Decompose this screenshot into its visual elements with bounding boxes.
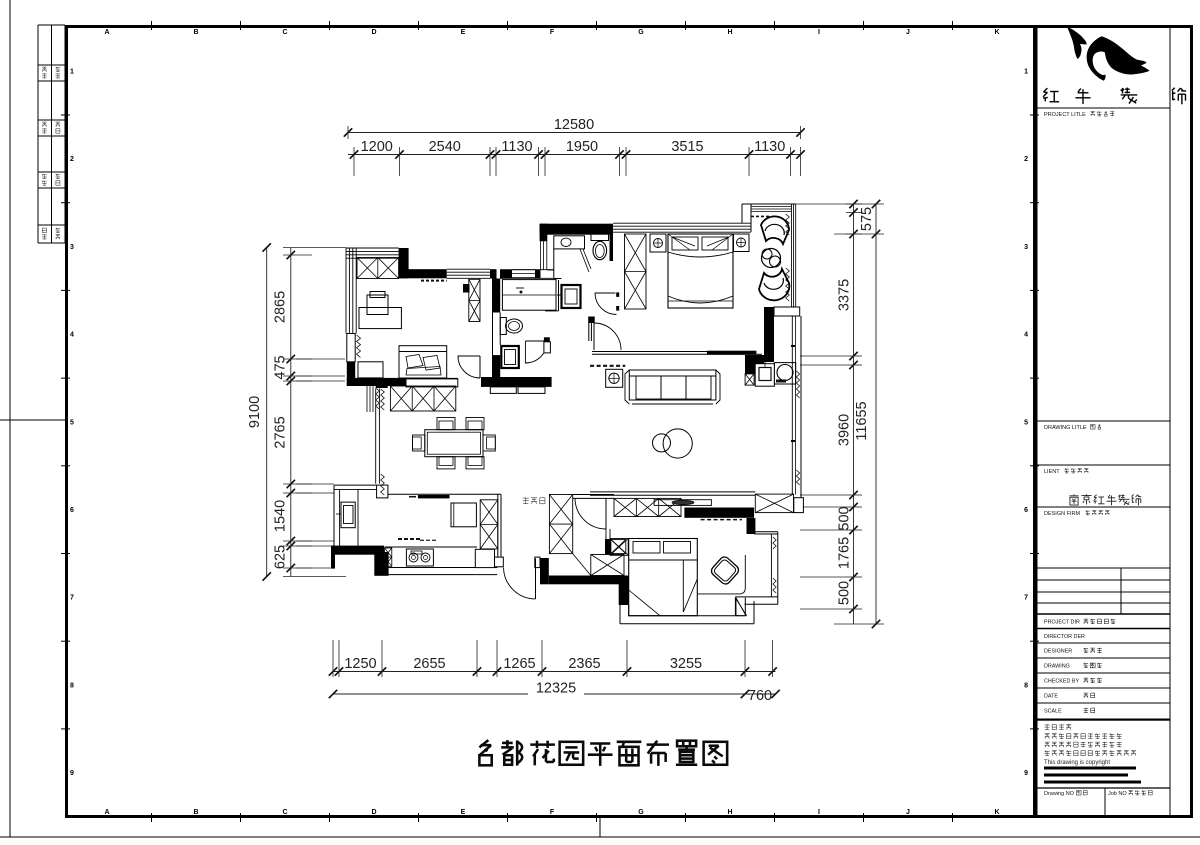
- svg-text:1: 1: [70, 69, 74, 76]
- svg-text:J: J: [906, 29, 910, 36]
- svg-text:J: J: [906, 809, 910, 816]
- svg-text:K: K: [994, 29, 999, 36]
- svg-text:A: A: [104, 809, 109, 816]
- svg-text:D: D: [371, 809, 376, 816]
- svg-text:1250: 1250: [344, 656, 376, 672]
- svg-text:DESIGNER: DESIGNER: [1044, 649, 1072, 655]
- svg-text:CHECKED BY: CHECKED BY: [1044, 679, 1079, 685]
- svg-text:PROJECT LITLE: PROJECT LITLE: [1044, 112, 1086, 118]
- svg-text:1130: 1130: [754, 139, 785, 155]
- svg-text:B: B: [193, 29, 198, 36]
- svg-text:8: 8: [70, 682, 74, 689]
- svg-text:5: 5: [70, 419, 74, 426]
- svg-text:3515: 3515: [671, 139, 703, 155]
- svg-text:SCALE: SCALE: [1044, 709, 1062, 715]
- svg-text:G: G: [638, 29, 644, 36]
- svg-text:475: 475: [273, 355, 289, 379]
- svg-text:1130: 1130: [501, 139, 532, 155]
- svg-text:6: 6: [70, 507, 74, 514]
- svg-text:LIENT: LIENT: [1044, 469, 1060, 475]
- svg-text:I: I: [818, 29, 820, 36]
- svg-text:2540: 2540: [429, 139, 461, 155]
- svg-text:9100: 9100: [247, 396, 263, 428]
- svg-text:2365: 2365: [568, 656, 600, 672]
- svg-text:2865: 2865: [273, 291, 289, 323]
- svg-text:3: 3: [70, 244, 74, 251]
- svg-text:9: 9: [70, 770, 74, 777]
- svg-text:C: C: [282, 809, 287, 816]
- svg-text:625: 625: [273, 545, 289, 569]
- svg-text:760: 760: [748, 688, 772, 704]
- svg-text:K: K: [994, 809, 999, 816]
- svg-text:G: G: [638, 809, 644, 816]
- svg-text:2765: 2765: [273, 416, 289, 448]
- svg-text:7: 7: [1024, 595, 1028, 602]
- svg-text:DRAWING LITLE: DRAWING LITLE: [1044, 425, 1087, 431]
- svg-text:E: E: [461, 809, 466, 816]
- svg-text:5: 5: [1024, 419, 1028, 426]
- svg-text:7: 7: [70, 595, 74, 602]
- svg-text:2: 2: [1024, 156, 1028, 163]
- svg-text:1950: 1950: [566, 139, 598, 155]
- svg-text:F: F: [550, 809, 555, 816]
- svg-text:C: C: [282, 29, 287, 36]
- svg-text:1265: 1265: [503, 656, 535, 672]
- svg-text:3: 3: [1024, 244, 1028, 251]
- svg-text:12580: 12580: [554, 117, 594, 133]
- svg-text:DRAWING: DRAWING: [1044, 664, 1070, 670]
- svg-text:575: 575: [859, 207, 875, 231]
- svg-text:6: 6: [1024, 507, 1028, 514]
- svg-text:Drawing NO: Drawing NO: [1044, 791, 1075, 797]
- svg-text:A: A: [104, 29, 109, 36]
- svg-text:B: B: [193, 809, 198, 816]
- svg-text:Job NO: Job NO: [1108, 791, 1127, 797]
- svg-text:DIRECTOR DER: DIRECTOR DER: [1044, 634, 1085, 640]
- svg-text:3960: 3960: [837, 414, 853, 446]
- svg-text:This drawing is copyright: This drawing is copyright: [1044, 760, 1110, 766]
- svg-text:DATE: DATE: [1044, 694, 1058, 700]
- svg-text:I: I: [818, 809, 820, 816]
- svg-text:H: H: [727, 29, 732, 36]
- svg-text:PROJECT DIR: PROJECT DIR: [1044, 620, 1080, 626]
- svg-text:12325: 12325: [536, 681, 576, 697]
- svg-text:9: 9: [1024, 770, 1028, 777]
- svg-text:2: 2: [70, 156, 74, 163]
- svg-text:4: 4: [1024, 332, 1028, 339]
- svg-text:H: H: [727, 809, 732, 816]
- svg-text:500: 500: [837, 581, 853, 605]
- svg-text:1: 1: [1024, 69, 1028, 76]
- svg-text:1200: 1200: [361, 139, 393, 155]
- svg-text:4: 4: [70, 332, 74, 339]
- svg-text:11655: 11655: [854, 401, 870, 440]
- svg-text:3255: 3255: [670, 656, 702, 672]
- svg-text:D: D: [371, 29, 376, 36]
- svg-text:8: 8: [1024, 682, 1028, 689]
- svg-text:1765: 1765: [837, 537, 853, 569]
- svg-text:DESIGN FIRM: DESIGN FIRM: [1044, 511, 1080, 517]
- svg-text:500: 500: [837, 506, 853, 530]
- svg-text:2655: 2655: [413, 656, 445, 672]
- svg-text:3375: 3375: [837, 279, 853, 311]
- svg-text:E: E: [461, 29, 466, 36]
- svg-text:1540: 1540: [273, 500, 289, 532]
- svg-text:F: F: [550, 29, 555, 36]
